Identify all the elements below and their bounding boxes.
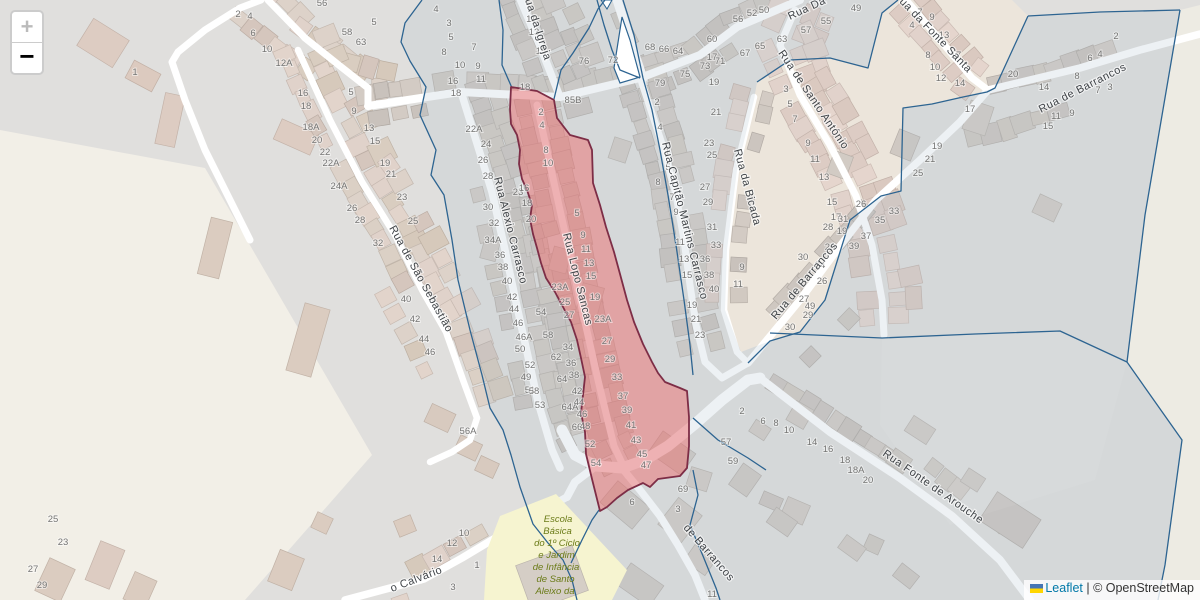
svg-text:15: 15 — [586, 271, 597, 282]
svg-text:18: 18 — [301, 101, 312, 112]
svg-text:52: 52 — [747, 8, 758, 19]
svg-text:28: 28 — [823, 222, 834, 233]
svg-text:53: 53 — [535, 400, 546, 411]
svg-text:3: 3 — [1107, 82, 1112, 93]
svg-text:79: 79 — [655, 78, 666, 89]
svg-text:40: 40 — [502, 276, 513, 287]
svg-text:25: 25 — [560, 297, 571, 308]
svg-text:26: 26 — [817, 276, 828, 287]
svg-text:34A: 34A — [485, 235, 503, 246]
svg-text:13: 13 — [819, 172, 830, 183]
svg-text:65: 65 — [755, 41, 766, 52]
svg-text:6: 6 — [629, 497, 634, 508]
svg-text:54: 54 — [536, 307, 547, 318]
svg-text:21: 21 — [691, 314, 702, 325]
svg-text:6: 6 — [1087, 53, 1092, 64]
svg-text:52: 52 — [585, 439, 596, 450]
svg-text:5: 5 — [448, 32, 453, 43]
svg-text:33: 33 — [711, 240, 722, 251]
svg-text:9: 9 — [805, 138, 810, 149]
svg-text:20: 20 — [863, 475, 874, 486]
svg-text:46: 46 — [577, 409, 588, 420]
svg-text:6: 6 — [760, 416, 765, 427]
svg-text:9: 9 — [475, 61, 480, 72]
svg-text:11: 11 — [707, 589, 717, 600]
svg-text:19: 19 — [687, 300, 698, 311]
svg-text:57: 57 — [801, 25, 812, 36]
svg-text:43: 43 — [631, 435, 642, 446]
svg-text:16: 16 — [298, 88, 309, 99]
svg-text:e Jardim: e Jardim — [538, 550, 575, 561]
svg-text:8: 8 — [543, 145, 548, 156]
svg-text:Aleixo da: Aleixo da — [534, 586, 574, 597]
svg-text:49: 49 — [521, 372, 532, 383]
svg-text:Básica: Básica — [543, 526, 572, 537]
svg-text:64: 64 — [557, 374, 568, 385]
svg-text:62: 62 — [551, 352, 562, 363]
svg-text:11: 11 — [810, 154, 820, 165]
svg-text:46: 46 — [513, 318, 524, 329]
svg-text:3: 3 — [783, 84, 788, 95]
svg-text:41: 41 — [626, 420, 637, 431]
svg-text:3: 3 — [450, 582, 455, 593]
svg-text:45: 45 — [637, 449, 648, 460]
svg-text:72: 72 — [608, 55, 619, 66]
svg-text:4: 4 — [247, 11, 252, 22]
svg-text:19: 19 — [932, 141, 943, 152]
svg-text:76: 76 — [579, 56, 590, 67]
svg-text:44: 44 — [574, 397, 585, 408]
svg-text:63: 63 — [356, 37, 367, 48]
svg-text:14: 14 — [432, 554, 443, 565]
svg-text:14: 14 — [1039, 82, 1050, 93]
svg-text:25: 25 — [913, 168, 924, 179]
svg-text:11: 11 — [476, 74, 486, 85]
svg-text:20: 20 — [1008, 69, 1019, 80]
svg-text:27: 27 — [28, 564, 39, 575]
svg-text:18: 18 — [522, 198, 533, 209]
svg-text:46: 46 — [425, 347, 436, 358]
svg-text:16: 16 — [823, 444, 834, 455]
svg-text:29: 29 — [37, 580, 48, 591]
svg-text:24: 24 — [481, 139, 492, 150]
svg-text:12A: 12A — [276, 58, 294, 69]
svg-text:40: 40 — [401, 294, 412, 305]
svg-text:15: 15 — [1043, 121, 1054, 132]
svg-text:30: 30 — [483, 202, 494, 213]
svg-text:64: 64 — [673, 46, 684, 57]
svg-text:3: 3 — [675, 504, 680, 515]
svg-text:23A: 23A — [552, 282, 570, 293]
svg-text:14: 14 — [807, 437, 818, 448]
svg-text:8: 8 — [655, 177, 660, 188]
svg-text:11: 11 — [581, 244, 591, 255]
svg-text:6: 6 — [250, 28, 255, 39]
svg-text:24A: 24A — [331, 181, 349, 192]
svg-text:4: 4 — [657, 122, 662, 133]
svg-text:2: 2 — [538, 107, 543, 118]
svg-text:27: 27 — [700, 182, 711, 193]
svg-text:4: 4 — [1097, 49, 1102, 60]
svg-text:56A: 56A — [460, 426, 478, 437]
svg-text:23: 23 — [704, 138, 715, 149]
svg-text:34: 34 — [563, 342, 574, 353]
svg-text:7: 7 — [792, 114, 797, 125]
svg-text:31: 31 — [838, 214, 849, 225]
svg-text:25: 25 — [408, 216, 419, 227]
svg-text:27: 27 — [602, 336, 613, 347]
svg-text:21: 21 — [386, 169, 397, 180]
svg-text:42: 42 — [507, 292, 518, 303]
svg-text:67: 67 — [740, 48, 751, 59]
svg-text:23: 23 — [58, 537, 69, 548]
svg-text:4: 4 — [539, 120, 544, 131]
svg-text:12: 12 — [936, 73, 947, 84]
svg-text:10: 10 — [262, 44, 273, 55]
svg-text:17: 17 — [707, 52, 718, 63]
svg-text:2: 2 — [654, 97, 659, 108]
svg-text:15: 15 — [370, 136, 381, 147]
svg-text:42: 42 — [572, 386, 583, 397]
svg-text:28: 28 — [355, 215, 366, 226]
svg-text:23: 23 — [397, 192, 408, 203]
svg-text:26: 26 — [347, 203, 358, 214]
svg-text:40: 40 — [709, 284, 720, 295]
svg-text:8: 8 — [773, 418, 778, 429]
svg-text:85B: 85B — [565, 95, 582, 106]
svg-text:30: 30 — [785, 322, 796, 333]
svg-text:10: 10 — [543, 158, 554, 169]
svg-text:29: 29 — [703, 197, 714, 208]
svg-text:38: 38 — [569, 370, 580, 381]
svg-text:9: 9 — [739, 262, 744, 273]
svg-text:5: 5 — [787, 99, 792, 110]
svg-text:11: 11 — [733, 279, 743, 290]
svg-text:17: 17 — [965, 104, 976, 115]
svg-text:15: 15 — [827, 197, 838, 208]
svg-text:1: 1 — [474, 560, 479, 571]
svg-text:69: 69 — [678, 484, 689, 495]
svg-text:4: 4 — [433, 4, 438, 15]
svg-text:7: 7 — [471, 42, 476, 53]
svg-text:44: 44 — [419, 334, 430, 345]
svg-text:22A: 22A — [323, 158, 341, 169]
svg-text:52: 52 — [525, 360, 536, 371]
svg-text:26: 26 — [856, 199, 867, 210]
svg-text:63: 63 — [777, 34, 788, 45]
svg-text:20: 20 — [312, 135, 323, 146]
svg-text:21: 21 — [711, 107, 722, 118]
svg-text:26: 26 — [478, 155, 489, 166]
svg-text:9: 9 — [351, 106, 356, 117]
svg-text:42: 42 — [410, 314, 421, 325]
svg-text:33: 33 — [889, 206, 900, 217]
svg-text:21: 21 — [925, 154, 936, 165]
svg-text:25: 25 — [707, 150, 718, 161]
svg-text:8: 8 — [925, 50, 930, 61]
svg-text:2: 2 — [739, 406, 744, 417]
svg-text:49: 49 — [805, 301, 816, 312]
svg-text:36: 36 — [566, 358, 577, 369]
svg-text:5: 5 — [348, 87, 353, 98]
svg-text:3: 3 — [446, 18, 451, 29]
svg-text:do 1º Ciclo: do 1º Ciclo — [534, 538, 580, 549]
svg-text:15: 15 — [682, 270, 693, 281]
svg-text:27: 27 — [564, 310, 575, 321]
svg-text:25: 25 — [48, 514, 59, 525]
svg-text:46A: 46A — [516, 332, 534, 343]
svg-text:48: 48 — [580, 421, 591, 432]
svg-text:5: 5 — [371, 17, 376, 28]
svg-text:56: 56 — [733, 14, 744, 25]
svg-text:58: 58 — [342, 27, 353, 38]
svg-text:18: 18 — [520, 82, 531, 93]
svg-text:9: 9 — [1069, 108, 1074, 119]
svg-text:22: 22 — [320, 147, 331, 158]
svg-text:29: 29 — [605, 354, 616, 365]
svg-text:5: 5 — [574, 208, 579, 219]
svg-text:60: 60 — [707, 34, 718, 45]
svg-text:75: 75 — [680, 69, 691, 80]
svg-text:56: 56 — [317, 0, 328, 9]
svg-text:de Infância: de Infância — [533, 562, 579, 573]
svg-text:19: 19 — [709, 77, 720, 88]
svg-text:10: 10 — [930, 62, 941, 73]
svg-text:44: 44 — [509, 304, 520, 315]
svg-text:59: 59 — [728, 456, 739, 467]
svg-text:1: 1 — [132, 67, 137, 78]
svg-text:2: 2 — [1113, 31, 1118, 42]
svg-text:35: 35 — [875, 215, 886, 226]
svg-text:37: 37 — [618, 391, 629, 402]
svg-text:36: 36 — [495, 250, 506, 261]
svg-text:13: 13 — [584, 258, 595, 269]
svg-text:19: 19 — [380, 158, 391, 169]
svg-text:16: 16 — [519, 183, 530, 194]
svg-text:10: 10 — [455, 60, 466, 71]
svg-text:8: 8 — [441, 47, 446, 58]
svg-text:50: 50 — [759, 5, 770, 16]
svg-text:2: 2 — [235, 9, 240, 20]
svg-text:20: 20 — [526, 214, 537, 225]
svg-text:32: 32 — [489, 218, 500, 229]
svg-text:47: 47 — [641, 460, 652, 471]
svg-text:Escola: Escola — [544, 514, 573, 525]
svg-text:50: 50 — [515, 344, 526, 355]
svg-text:10: 10 — [784, 425, 795, 436]
svg-text:39: 39 — [849, 241, 860, 252]
svg-text:58: 58 — [529, 386, 540, 397]
svg-text:39: 39 — [622, 405, 633, 416]
svg-text:13: 13 — [364, 123, 375, 134]
svg-text:66: 66 — [659, 44, 670, 55]
svg-text:68: 68 — [645, 42, 656, 53]
svg-text:10: 10 — [459, 528, 470, 539]
svg-text:37: 37 — [861, 231, 872, 242]
svg-text:57: 57 — [721, 437, 732, 448]
svg-text:19: 19 — [590, 292, 601, 303]
svg-text:32: 32 — [373, 238, 384, 249]
svg-text:38: 38 — [498, 262, 509, 273]
svg-text:31: 31 — [707, 222, 718, 233]
svg-text:55: 55 — [821, 16, 832, 27]
svg-text:23A: 23A — [595, 314, 613, 325]
svg-text:22A: 22A — [466, 124, 484, 135]
svg-text:19: 19 — [837, 226, 848, 237]
svg-text:54: 54 — [591, 458, 602, 469]
svg-text:49: 49 — [851, 3, 862, 14]
svg-text:18: 18 — [451, 88, 462, 99]
svg-text:33: 33 — [612, 372, 623, 383]
svg-text:58: 58 — [543, 330, 554, 341]
svg-text:12: 12 — [447, 538, 458, 549]
svg-text:16: 16 — [448, 76, 459, 87]
svg-text:18A: 18A — [303, 122, 321, 133]
svg-text:14: 14 — [955, 78, 966, 89]
svg-text:8: 8 — [1074, 71, 1079, 82]
svg-text:9: 9 — [580, 230, 585, 241]
svg-text:30: 30 — [798, 252, 809, 263]
svg-text:de Santo: de Santo — [536, 574, 574, 585]
svg-text:23: 23 — [695, 330, 706, 341]
